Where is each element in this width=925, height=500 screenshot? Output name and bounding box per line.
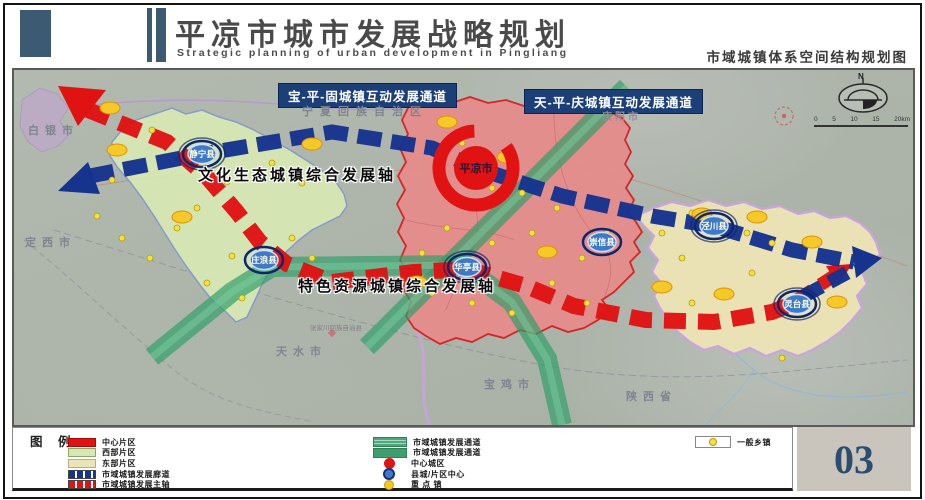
legend-swatch-green-channel-2: [373, 448, 407, 458]
legend-item: 市域城镇发展廊道: [68, 469, 170, 480]
legend-item: 西部片区: [68, 448, 170, 459]
brand-bar: [156, 8, 166, 62]
page-number-box: 03: [797, 427, 911, 491]
county-label: 华亭县: [454, 262, 480, 272]
scale-tick: 5: [832, 116, 836, 123]
legend-item: 中心片区: [68, 437, 170, 448]
scale-tick: 15: [872, 116, 879, 123]
legend-column-3: 一般乡镇: [695, 437, 771, 448]
legend-label: 市域城镇发展主轴: [102, 479, 170, 490]
neighbor-label-baiyin: 白银市: [28, 122, 79, 138]
scale-tick: 10: [850, 116, 857, 123]
legend-column-2: 市域城镇发展通道 市域城镇发展通道 中心城区 县城/片区中心 重 点 镇: [373, 437, 481, 490]
county-marker-chongxin: 崇信县: [583, 229, 621, 255]
neighbor-label-ningxia: 宁夏回族自治区: [302, 103, 428, 119]
legend-label: 重 点 镇: [411, 479, 442, 490]
map-canvas: 平凉市 静宁县 庄浪县 华亭县: [14, 70, 913, 425]
county-marker-zhuanglang: 庄浪县: [245, 247, 283, 273]
scale-line: [814, 125, 908, 127]
legend-item: 县城/片区中心: [373, 469, 481, 480]
legend-label: 市域城镇发展通道: [413, 447, 481, 458]
neighbor-label-tianshui: 天水市: [276, 343, 327, 359]
legend-swatch-west-district: [68, 448, 96, 457]
legend-label: 一般乡镇: [737, 437, 771, 448]
neighbor-label-shaanxi: 陕西省: [626, 388, 677, 404]
legend-label: 县城/片区中心: [411, 469, 465, 480]
legend-swatch-blue-corridor: [68, 470, 96, 479]
legend-item: 一般乡镇: [695, 437, 771, 448]
legend-column-1: 中心片区 西部片区 东部片区 市域城镇发展廊道 市域城镇发展主轴: [68, 437, 170, 490]
legend-swatch-county-center: [383, 468, 395, 480]
axis-label-resource: 特色资源城镇综合发展轴: [298, 275, 496, 296]
center-city-label: 平凉市: [460, 161, 493, 175]
legend-swatch-green-channel: [373, 437, 407, 447]
brand-square: [20, 10, 51, 57]
legend-item: 重 点 镇: [373, 479, 481, 490]
legend-item: 市域城镇发展主轴: [68, 479, 170, 490]
legend-panel: 图 例 中心片区 西部片区 东部片区 市域城镇发展廊道 市域城镇发展主轴: [12, 427, 793, 491]
axis-label-culture: 文化生态城镇综合发展轴: [198, 164, 396, 185]
county-label: 灵台县: [784, 299, 810, 309]
county-label: 庄浪县: [251, 255, 277, 265]
county-label: 静宁县: [189, 149, 215, 159]
legend-item: 市域城镇发展通道: [373, 437, 481, 448]
county-label: 崇信县: [589, 237, 615, 247]
neighbor-label-zhangjiachuan: 张家川回族自治县: [310, 322, 362, 332]
sheet-title: 市域城镇体系空间结构规划图: [560, 46, 908, 66]
legend-swatch-red-main-axis: [68, 480, 96, 489]
neighbor-label-baoji: 宝鸡市: [484, 376, 535, 392]
neighbor-label-dingxi: 定西市: [25, 234, 76, 250]
legend-label: 市域城镇发展廊道: [102, 469, 170, 480]
legend-swatch-east-district: [68, 459, 96, 468]
compass-icon: [839, 78, 887, 112]
legend-swatch-center-district: [68, 438, 96, 447]
legend-label: 中心城区: [411, 458, 445, 469]
brand-bar: [147, 8, 152, 62]
legend-label: 中心片区: [102, 437, 136, 448]
page-subtitle: Strategic planning of urban development …: [177, 47, 568, 59]
scale-tick: 0: [814, 116, 818, 123]
county-label: 泾川县: [701, 221, 727, 231]
legend-swatch-general-town: [695, 436, 731, 448]
legend-label: 市域城镇发展通道: [413, 437, 481, 448]
north-label: N: [858, 72, 864, 81]
legend-item: 东部片区: [68, 458, 170, 469]
page-number: 03: [834, 436, 874, 483]
scale-bar: 0 5 10 15 20km: [814, 116, 910, 127]
legend-item: 市域城镇发展通道: [373, 448, 481, 459]
scale-tick: 20km: [894, 116, 910, 123]
legend-label: 西部片区: [102, 447, 136, 458]
legend-label: 东部片区: [102, 458, 136, 469]
planning-sheet: 平凉市城市发展战略规划 Strategic planning of urban …: [0, 0, 925, 500]
neighbor-label-qingyang: 庆阳市: [602, 108, 641, 123]
legend-swatch-key-town: [384, 480, 394, 490]
map-panel: 平凉市 静宁县 庄浪县 华亭县: [12, 68, 915, 427]
